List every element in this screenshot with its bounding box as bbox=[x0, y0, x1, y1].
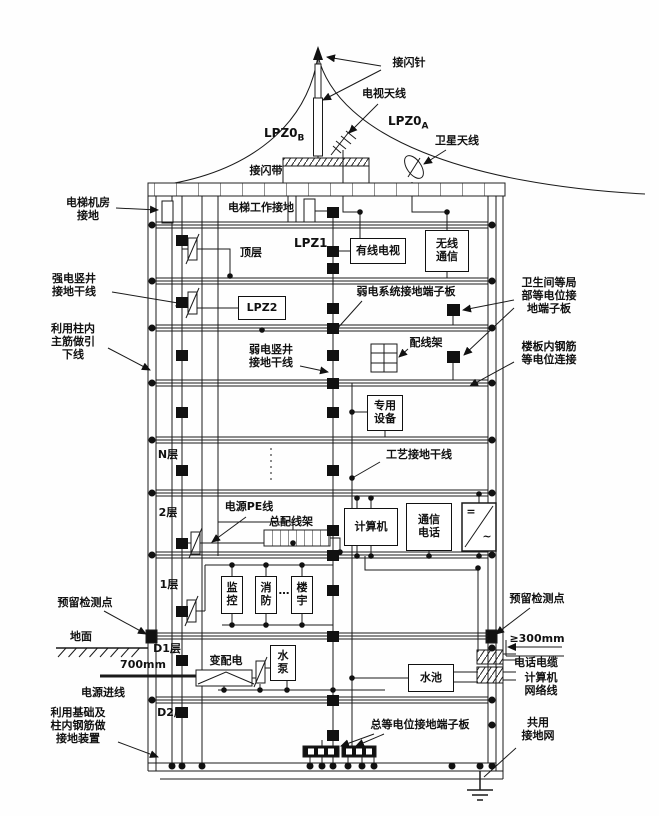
lightning-protection-grounding-diagram: 接闪针 电视天线 LPZ0B LPZ0A 卫星天线 接闪带 电梯机房 接地 电梯… bbox=[0, 0, 659, 816]
wall-bond-dot bbox=[149, 490, 156, 497]
wall-bond-dot bbox=[489, 490, 496, 497]
d2-floor-label: D2层 bbox=[153, 706, 189, 719]
riser-bond-square bbox=[327, 407, 339, 418]
wall-bond-dot bbox=[489, 380, 496, 387]
wall-bond-dot bbox=[149, 437, 156, 444]
strong-shaft-riser-label: 强电竖井 接地干线 bbox=[42, 272, 106, 298]
riser-bond-square bbox=[327, 695, 339, 706]
junction-dot bbox=[330, 687, 336, 693]
weak-system-terminal-label: 弱电系统接地端子板 bbox=[346, 285, 466, 298]
main-equipotential-terminal-label: 总等电位接地端子板 bbox=[358, 718, 482, 731]
wall-bond-dot bbox=[149, 697, 156, 704]
junction-dot bbox=[354, 553, 360, 559]
foundation-bond-dot bbox=[489, 763, 496, 770]
wall-bond-dot bbox=[149, 380, 156, 387]
earth-hatch-tick bbox=[90, 648, 98, 657]
wall-bond-dot bbox=[489, 697, 496, 704]
riser-bond-square bbox=[327, 730, 339, 741]
foundation-bond-dot bbox=[307, 763, 314, 770]
junction-dot bbox=[476, 553, 482, 559]
water-pool-box: 水池 bbox=[408, 664, 454, 692]
riser-bond-square bbox=[327, 525, 339, 536]
transformer-symbol bbox=[196, 670, 254, 686]
junction-dot bbox=[299, 562, 305, 568]
lpz0b-label: LPZ0B bbox=[264, 126, 304, 143]
monitoring-box: 监 控 bbox=[221, 576, 243, 614]
junction-dot bbox=[349, 475, 355, 481]
depth-700-label: 700mm bbox=[118, 658, 168, 671]
computer-network-label: 计算机 网络线 bbox=[516, 671, 566, 697]
boxes-ellipsis: … bbox=[277, 584, 291, 597]
junction-dot bbox=[476, 491, 482, 497]
junction-dot bbox=[368, 553, 374, 559]
foundation-bond-dot bbox=[319, 763, 326, 770]
junction-dot bbox=[337, 549, 343, 555]
junction-dot bbox=[263, 622, 269, 628]
riser-bond-square bbox=[176, 655, 188, 666]
riser-bond-square bbox=[176, 465, 188, 476]
riser-bond-square bbox=[176, 407, 188, 418]
earth-hatch-tick bbox=[132, 648, 140, 657]
ground-surface-label: 地面 bbox=[64, 630, 98, 643]
junction-dot bbox=[257, 687, 263, 693]
n-floor-label: N层 bbox=[153, 448, 183, 461]
junction-dot bbox=[259, 327, 265, 333]
riser-bond-square bbox=[176, 538, 188, 549]
reserved-test-point-right-label: 预留检测点 bbox=[500, 592, 574, 605]
equipotential-terminal-squares bbox=[447, 304, 460, 363]
fire-box: 消 防 bbox=[255, 576, 277, 614]
foundation-bond-dot bbox=[169, 763, 176, 770]
riser-bond-square bbox=[176, 606, 188, 617]
wall-bond-dot bbox=[489, 722, 496, 729]
weak-shaft-riser-label: 弱电竖井 接地干线 bbox=[241, 343, 301, 369]
riser-bond-square bbox=[176, 297, 188, 308]
riser-bond-square bbox=[327, 631, 339, 642]
junction-dot bbox=[263, 562, 269, 568]
power-incoming-label: 电源进线 bbox=[74, 686, 132, 699]
air-terminal-label: 接闪针 bbox=[383, 56, 435, 69]
wall-bond-dot bbox=[149, 325, 156, 332]
wall-bond-dot bbox=[149, 278, 156, 285]
junction-dot bbox=[354, 495, 360, 501]
foundation-bond-dot bbox=[371, 763, 378, 770]
earth-hatch-tick bbox=[111, 648, 119, 657]
tv-antenna-label: 电视天线 bbox=[355, 87, 413, 100]
air-termination-belt-label: 接闪带 bbox=[242, 164, 290, 177]
elevator-working-ground-label: 电梯工作接地 bbox=[218, 201, 304, 214]
wall-bond-dot bbox=[149, 222, 156, 229]
terminal-strips bbox=[303, 740, 376, 766]
junction-dot bbox=[368, 495, 374, 501]
riser-bond-square bbox=[327, 323, 339, 334]
d1-floor-label: D1层 bbox=[150, 642, 184, 655]
dedicated-equipment-box: 专用 设备 bbox=[367, 395, 403, 431]
satellite-antenna-label: 卫星天线 bbox=[428, 134, 486, 147]
transformer-label: 变配电 bbox=[194, 654, 258, 667]
min-300-label: ≥300mm bbox=[508, 632, 566, 645]
floor2-label: 2层 bbox=[155, 506, 181, 519]
foundation-bond-dot bbox=[330, 763, 337, 770]
building-auto-box: 楼 宇 bbox=[291, 576, 313, 614]
foundation-bond-dot bbox=[345, 763, 352, 770]
phone-cable-label: 电话电缆 bbox=[508, 656, 564, 669]
riser-bond-square bbox=[327, 207, 339, 218]
junction-dot bbox=[349, 409, 355, 415]
computer-box: 计算机 bbox=[344, 508, 398, 546]
common-ground-grid-label: 共用 接地网 bbox=[514, 716, 562, 742]
foundation-bond-dot bbox=[359, 763, 366, 770]
power-pe-label: 电源PE线 bbox=[218, 500, 280, 513]
top-floor-label: 顶层 bbox=[234, 246, 268, 259]
wall-bond-dot bbox=[489, 325, 496, 332]
converter-dc-glyph: = bbox=[465, 505, 477, 518]
lpz2-box: LPZ2 bbox=[238, 296, 286, 320]
riser-bond-square bbox=[327, 465, 339, 476]
junction-dot bbox=[299, 622, 305, 628]
riser-bond-square bbox=[327, 550, 339, 561]
riser-bond-square bbox=[176, 350, 188, 361]
air-terminal-mast bbox=[313, 46, 323, 160]
riser-bond-square bbox=[327, 303, 339, 314]
wall-bond-dot bbox=[149, 552, 156, 559]
earth-hatch-tick bbox=[100, 648, 108, 657]
wall-bond-dot bbox=[489, 278, 496, 285]
earth-hatch-tick bbox=[69, 648, 77, 657]
junction-dot bbox=[426, 553, 432, 559]
main-wiring-frame-label: 总配线架 bbox=[262, 515, 320, 528]
junction-dot bbox=[229, 622, 235, 628]
comm-phone-box: 通信 电话 bbox=[406, 503, 452, 551]
riser-bond-square bbox=[327, 263, 339, 274]
wall-bond-dot bbox=[489, 222, 496, 229]
wireless-comm-box: 无线 通信 bbox=[425, 230, 469, 272]
junction-dot bbox=[227, 273, 233, 279]
junction-dot bbox=[221, 687, 227, 693]
riser-bond-square bbox=[327, 350, 339, 361]
wall-bond-dot bbox=[489, 552, 496, 559]
earth-hatch-tick bbox=[58, 648, 66, 657]
riser-bond-square bbox=[327, 585, 339, 596]
junction-dot bbox=[229, 562, 235, 568]
junction-dot bbox=[290, 540, 296, 546]
wiring-frame-label: 配线架 bbox=[404, 336, 448, 349]
foundation-bond-dot bbox=[199, 763, 206, 770]
cable-tv-box: 有线电视 bbox=[350, 238, 406, 264]
converter-ac-glyph: ~ bbox=[481, 530, 493, 543]
junction-dot bbox=[284, 687, 290, 693]
interior-wiring bbox=[100, 251, 479, 690]
riser-bond-square bbox=[327, 246, 339, 257]
elevator-room-ground-label: 电梯机房 接地 bbox=[58, 196, 118, 222]
foundation-rebar-ground-label: 利用基础及 柱内钢筋做 接地装置 bbox=[40, 706, 116, 746]
column-rebar-down-conductor-label: 利用柱内 主筋做引 下线 bbox=[42, 322, 104, 362]
reserved-test-point-left-label: 预留检测点 bbox=[48, 596, 122, 609]
air-termination-belt-band bbox=[148, 183, 505, 196]
foundation-bond-dot bbox=[179, 763, 186, 770]
junction-dot bbox=[475, 565, 481, 571]
process-ground-riser-label: 工艺接地干线 bbox=[376, 448, 462, 461]
junction-dot bbox=[444, 209, 450, 215]
foundation-bond-dot bbox=[477, 763, 484, 770]
wall-bond-dot bbox=[489, 437, 496, 444]
earth-hatch-tick bbox=[79, 648, 87, 657]
riser-bond-square bbox=[327, 378, 339, 389]
slab-rebar-bond-label: 楼板内钢筋 等电位连接 bbox=[512, 340, 586, 366]
junction-dot bbox=[349, 675, 355, 681]
lpz1-label: LPZ1 bbox=[294, 236, 328, 250]
lpz0a-label: LPZ0A bbox=[388, 114, 428, 131]
wall-bond-dot bbox=[489, 645, 496, 652]
junction-dot bbox=[357, 209, 363, 215]
water-pump-box: 水 泵 bbox=[270, 645, 296, 681]
floor1-label: 1层 bbox=[156, 578, 182, 591]
earth-hatch-tick bbox=[121, 648, 129, 657]
riser-bond-square bbox=[176, 235, 188, 246]
foundation-bond-dot bbox=[449, 763, 456, 770]
bathroom-terminal-label: 卫生间等局 部等电位接 地端子板 bbox=[514, 276, 584, 316]
